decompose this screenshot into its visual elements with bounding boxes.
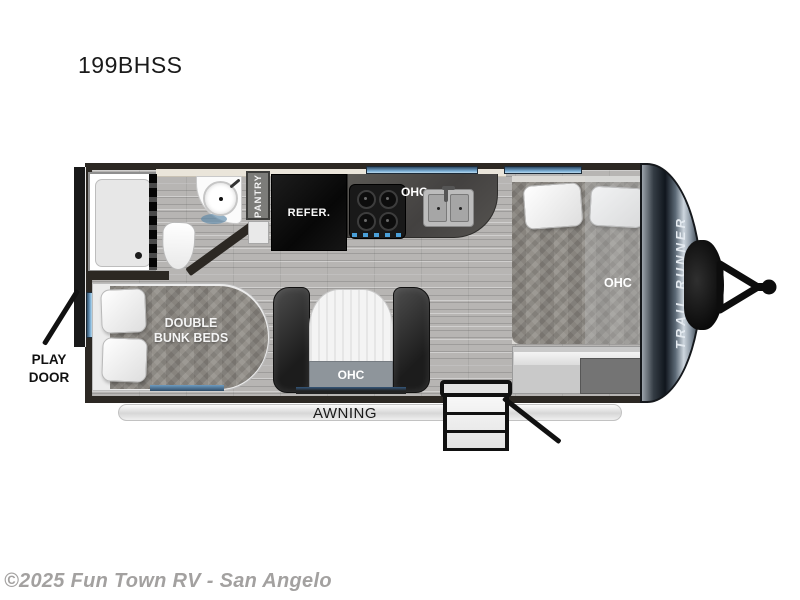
dinette-base <box>296 387 406 394</box>
shower-drain-icon <box>135 252 142 259</box>
step-rung <box>447 412 505 415</box>
pantry-cabinet: PANTRY <box>246 171 270 220</box>
dinette-ohc: OHC <box>309 361 393 389</box>
awning-label: AWNING <box>290 405 400 422</box>
refrigerator-label: REFER. <box>288 207 331 219</box>
bunk-beds-label: DOUBLE BUNK BEDS <box>133 316 249 346</box>
bedroom-window <box>504 166 582 174</box>
model-title: 199BHSS <box>78 52 183 79</box>
bathroom-wall <box>85 271 169 280</box>
bed-ohc-label: OHC <box>604 276 632 290</box>
kitchen-faucet-icon <box>442 186 455 190</box>
burner-icon <box>357 190 376 209</box>
dinette-seat <box>273 287 310 393</box>
sink-bowl <box>450 194 469 222</box>
burner-icon <box>357 212 376 231</box>
pantry-base-cabinet <box>248 221 269 244</box>
floorplan-page: 199BHSS PANTRY REFER. OHC <box>0 0 800 600</box>
dinette-seat <box>393 287 430 393</box>
burner-icon <box>379 190 398 209</box>
shower-pan <box>95 179 151 267</box>
kitchen-window <box>366 166 478 174</box>
refrigerator: REFER. <box>271 174 347 251</box>
range-stove <box>349 184 406 239</box>
play-door-panel <box>74 167 86 347</box>
shower <box>88 172 156 272</box>
play-door-label: PLAY DOOR <box>26 351 72 386</box>
pantry-label: PANTRY <box>253 174 264 218</box>
bunk-window-accent <box>150 385 224 391</box>
hitch-a-frame-icon <box>714 258 780 316</box>
step-rung <box>447 448 505 451</box>
entry-step-landing <box>440 380 512 397</box>
bed-pillow <box>523 182 584 230</box>
dinette-ohc-label: OHC <box>338 368 365 382</box>
step-rung <box>447 430 505 433</box>
burner-icon <box>379 212 398 231</box>
stove-knobs <box>352 233 402 237</box>
sink-drain-icon <box>219 197 223 201</box>
entry-steps <box>443 397 509 451</box>
kitchen-sink <box>423 189 474 227</box>
shower-door <box>149 174 157 270</box>
dealer-watermark: ©2025 Fun Town RV - San Angelo <box>4 570 332 593</box>
